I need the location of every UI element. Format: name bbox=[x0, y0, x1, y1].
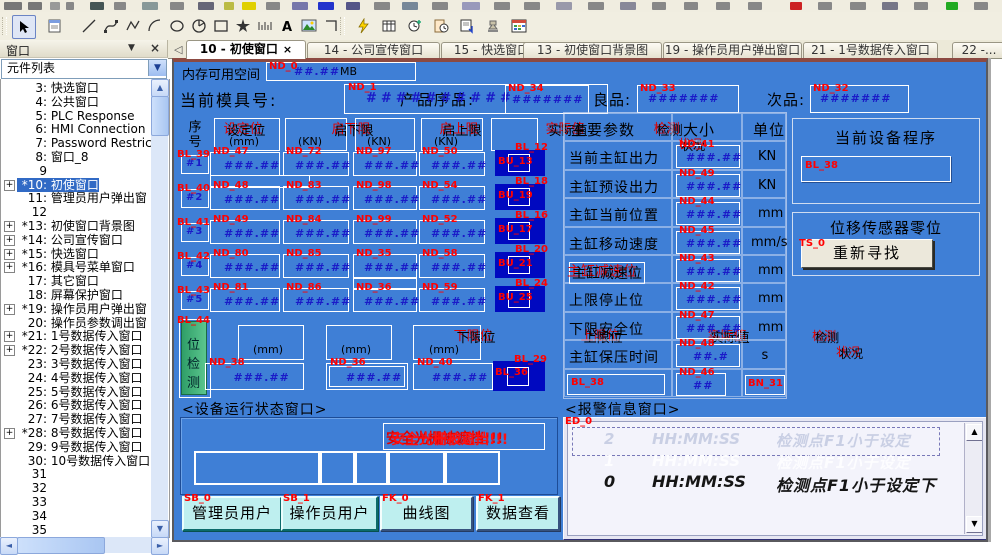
toolbar-fragment bbox=[292, 2, 308, 10]
object-id-label: ND_47 bbox=[679, 311, 715, 321]
tree-item-21[interactable]: +*21: 1号数据传入窗口 bbox=[1, 329, 169, 343]
params-unit: mm bbox=[758, 263, 783, 278]
params-name-cell[interactable]: 主缸当前位置 bbox=[564, 198, 672, 226]
toolbar-grip bbox=[340, 17, 345, 35]
toolbar-fragment bbox=[850, 2, 866, 10]
program-group: 当前设备程序BL_38 bbox=[792, 118, 980, 204]
status-segment-5[interactable] bbox=[443, 451, 500, 485]
object-id-label: ND_50 bbox=[422, 147, 458, 157]
toolbar-fragment bbox=[114, 2, 126, 10]
object-id-label: BL_42 bbox=[177, 252, 210, 262]
status-segment-4[interactable] bbox=[386, 451, 447, 485]
toolbar-fragment bbox=[432, 2, 448, 10]
component-list-combobox[interactable]: 元件列表 ▼ bbox=[1, 59, 167, 79]
toolbar-fragment bbox=[4, 2, 22, 10]
toolbar-fragment bbox=[556, 2, 572, 10]
expander-plus-icon[interactable]: + bbox=[4, 345, 15, 356]
pie-tool-icon[interactable] bbox=[188, 15, 210, 37]
object-id-label: ND_58 bbox=[422, 249, 458, 259]
params-unit-cell[interactable]: mm bbox=[742, 312, 786, 340]
object-id-label: ND_44 bbox=[679, 197, 715, 207]
stamp-tool-icon[interactable] bbox=[482, 15, 504, 37]
drawing-toolbar: A bbox=[0, 12, 1002, 41]
object-id-label: BL_18 bbox=[515, 177, 548, 187]
line-tool-icon[interactable] bbox=[78, 15, 100, 37]
tree-item-5[interactable]: 5: PLC Response bbox=[1, 109, 169, 123]
sensor-group: 位移传感器零位重新寻找TS_0 bbox=[792, 212, 980, 276]
properties-tool-icon[interactable] bbox=[44, 15, 66, 37]
tree-item-label[interactable]: 33 bbox=[17, 495, 47, 509]
safety-alarm-box[interactable]: 安全光栅被遮挡!!!安全光栅被遮挡!!! bbox=[383, 423, 545, 450]
tree-item-label[interactable]: 11: 管理员用户弹出窗 bbox=[17, 191, 147, 205]
tab-5[interactable]: 19 - 操作员用户弹出窗口 bbox=[663, 42, 802, 58]
tab-close-icon[interactable]: × bbox=[283, 43, 292, 56]
tree-item-35[interactable]: 35 bbox=[1, 523, 169, 537]
value-placeholder: ###.## bbox=[346, 371, 402, 384]
tree-item-label[interactable]: *28: 8号数据传入窗口 bbox=[17, 426, 142, 440]
params-unit: mm bbox=[758, 320, 783, 335]
bad-count-label[interactable]: 次品: bbox=[767, 89, 805, 110]
tree-item-label[interactable]: 31 bbox=[17, 467, 47, 481]
tree-item-33[interactable]: 33 bbox=[1, 495, 169, 509]
params-value-cell[interactable]: ND_44###.## bbox=[672, 198, 742, 226]
status-window-title[interactable]: <设备运行状态窗口> bbox=[182, 399, 327, 419]
zero-check-char: 检 bbox=[187, 353, 200, 372]
object-id-label: ND_84 bbox=[286, 215, 322, 225]
toolbar-fragment bbox=[90, 2, 104, 10]
object-id-label: ND_59 bbox=[422, 283, 458, 293]
params-name-cell[interactable]: 主缸移动速度 bbox=[564, 227, 672, 255]
scheduler-tool-icon[interactable] bbox=[404, 15, 426, 37]
tree-item-label[interactable]: 9 bbox=[17, 164, 47, 178]
toolbar-fragment bbox=[974, 2, 988, 10]
value-placeholder: ###.## bbox=[431, 261, 487, 274]
tree-item-label[interactable]: 27: 7号数据传入窗口 bbox=[17, 412, 142, 426]
object-id-label: BL_20 bbox=[515, 245, 548, 255]
program-title[interactable]: 当前设备程序 bbox=[793, 127, 979, 148]
status-segment-1[interactable] bbox=[194, 451, 322, 485]
expander-plus-icon[interactable]: + bbox=[4, 331, 15, 342]
object-id-label: ND_99 bbox=[356, 215, 392, 225]
tree-item-6[interactable]: 6: HMI Connection bbox=[1, 122, 169, 136]
expander-plus-icon[interactable]: + bbox=[4, 235, 15, 246]
tree-item-label[interactable]: 20: 操作员参数调出窗 bbox=[17, 316, 147, 330]
params-name-cell[interactable]: 下限安全位 bbox=[564, 312, 672, 340]
tree-item-label[interactable]: 26: 6号数据传入窗口 bbox=[17, 398, 142, 412]
params-header-text: 单位 bbox=[753, 119, 785, 140]
params-unit-cell[interactable]: mm bbox=[742, 198, 786, 226]
tree-hscrollbar[interactable]: ◄► bbox=[0, 537, 168, 553]
object-id-label: ND_86 bbox=[286, 283, 322, 293]
tree-item-22[interactable]: +*22: 2号数据传入窗口 bbox=[1, 343, 169, 357]
params-header[interactable]: 单位 bbox=[742, 113, 786, 141]
bezier-tool-icon[interactable] bbox=[100, 15, 122, 37]
combo-value: 元件列表 bbox=[2, 61, 55, 75]
tree-item-label[interactable]: 32 bbox=[17, 481, 47, 495]
params-value-cell[interactable]: ND_41###.## bbox=[672, 141, 742, 169]
report-tool-icon[interactable] bbox=[456, 15, 478, 37]
tree-item-23[interactable]: 23: 3号数据传入窗口 bbox=[1, 357, 169, 371]
window-tab-bar: ◁ 10 - 初使窗口×14 - 公司宣传窗口15 - 快选窗口13 - 初使窗… bbox=[168, 40, 1002, 59]
scale-tool-icon[interactable] bbox=[254, 15, 276, 37]
params-unit: mm bbox=[758, 291, 783, 306]
toolbar-fragment bbox=[346, 2, 360, 10]
params-value-cell[interactable]: ND_47###.## bbox=[672, 312, 742, 340]
tree-item-13[interactable]: +*13: 初使窗口背景图 bbox=[1, 219, 169, 233]
tab-4[interactable]: 13 - 初使窗口背景图 bbox=[523, 42, 662, 58]
tree-item-18[interactable]: 18: 屏幕保护窗口 bbox=[1, 288, 169, 302]
params-unit-cell[interactable]: mm bbox=[742, 283, 786, 311]
tree-item-4[interactable]: 4: 公共窗口 bbox=[1, 95, 169, 109]
tree-item-label[interactable]: 25: 5号数据传入窗口 bbox=[17, 385, 142, 399]
object-id-label: ND_48 bbox=[679, 339, 715, 349]
params-unit: s bbox=[762, 348, 769, 363]
tree-item-20[interactable]: 20: 操作员参数调出窗 bbox=[1, 316, 169, 330]
params-name-cell[interactable]: 上限停止位 bbox=[564, 283, 672, 311]
params-name: 上限停止位 bbox=[569, 290, 644, 310]
alarm-window-panel: 2HH:MM:SS检测点F1小于设定1HH:MM:SS检测点F1小于设定0HH:… bbox=[563, 417, 987, 540]
value-placeholder: ###.## bbox=[364, 227, 420, 240]
params-name-cell[interactable]: 主缸减速位主缸减速位 bbox=[564, 255, 672, 283]
params-header-text: 主要参数 bbox=[571, 119, 635, 140]
zero-header-unit[interactable]: 状况状况 bbox=[839, 345, 863, 362]
object-id-label: ND_32 bbox=[813, 84, 849, 94]
tree-item-30[interactable]: 30: 10号数据传入窗口 bbox=[1, 454, 169, 468]
zero-check-char: 位 bbox=[187, 334, 200, 353]
alarm-row-message: 检测点F1小于设定 bbox=[776, 452, 911, 473]
database-tool-icon[interactable] bbox=[378, 15, 400, 37]
tree-item-24[interactable]: 24: 4号数据传入窗口 bbox=[1, 371, 169, 385]
expander-plus-icon[interactable]: + bbox=[4, 304, 15, 315]
params-unit: mm/s bbox=[751, 235, 787, 250]
tree-item-10[interactable]: +*10: 初使窗口 bbox=[1, 178, 169, 192]
params-value-cell[interactable]: ND_48##.# bbox=[672, 340, 742, 368]
alarm-row-message: 检测点F1小于设定下 bbox=[776, 472, 936, 494]
tree-item-label[interactable]: *16: 模具号菜单窗口 bbox=[17, 260, 135, 274]
toolbar-fragment bbox=[818, 2, 832, 10]
zero-check-button[interactable]: 位检测 bbox=[181, 321, 207, 395]
object-id-label: ND_72 bbox=[286, 147, 322, 157]
polyline-tool-icon[interactable] bbox=[122, 15, 144, 37]
params-unit-cell[interactable]: KN bbox=[742, 141, 786, 169]
params-table: 主要参数大小单位当前主缸出力ND_41###.##KN主缸预设出力ND_49##… bbox=[563, 112, 787, 399]
panel-dropdown-icon[interactable]: ▼ bbox=[128, 43, 135, 53]
memory-label[interactable]: 内存可用空间 bbox=[182, 64, 260, 83]
tree-item-label[interactable]: 7: Password Restrict bbox=[17, 136, 156, 150]
object-id-label: ND_49 bbox=[679, 169, 715, 179]
status-window-panel: 安全光栅被遮挡!!!安全光栅被遮挡!!! bbox=[180, 417, 558, 495]
params-name-cell[interactable]: BL_38 bbox=[564, 369, 672, 397]
tree-item-label[interactable]: 17: 其它窗口 bbox=[17, 274, 99, 288]
object-id-label: ND_38 bbox=[209, 358, 245, 368]
params-name: 主缸当前位置 bbox=[569, 205, 659, 225]
tree-item-32[interactable]: 32 bbox=[1, 481, 169, 495]
alarm-row-time: HH:MM:SS bbox=[652, 472, 746, 491]
object-id-label: ND_36 bbox=[356, 283, 392, 293]
params-value-cell[interactable]: ND_49###.## bbox=[672, 170, 742, 198]
params-name[interactable]: 主缸减速位主缸减速位 bbox=[569, 262, 645, 284]
tree-item-label[interactable]: *10: 初使窗口 bbox=[17, 178, 99, 192]
toolbar-fragment bbox=[66, 2, 74, 10]
params-unit-cell[interactable]: mm bbox=[742, 255, 786, 283]
params-name-cell[interactable]: 主缸保压时间 bbox=[564, 340, 672, 368]
tree-item-label[interactable]: 35 bbox=[17, 523, 47, 537]
tree-item-label[interactable]: 23: 3号数据传入窗口 bbox=[17, 357, 142, 371]
window-panel-header: 窗口 ▼ × bbox=[0, 40, 168, 58]
tab-1[interactable]: 10 - 初使窗口× bbox=[186, 40, 306, 59]
alarm-row-index: 0 bbox=[604, 472, 615, 491]
object-id-label: ND_46 bbox=[679, 368, 715, 378]
tab-7[interactable]: 22 -... bbox=[952, 42, 1002, 58]
object-id-label: BL_44 bbox=[177, 316, 210, 326]
sensor-title[interactable]: 位移传感器零位 bbox=[793, 217, 979, 238]
value-placeholder: ###.## bbox=[686, 322, 742, 335]
scroll-down-icon[interactable]: ▼ bbox=[151, 520, 169, 538]
tree-item-label[interactable]: 29: 9号数据传入窗口 bbox=[17, 440, 142, 454]
tree-item-label[interactable]: 3: 快选窗口 bbox=[17, 81, 99, 95]
tree-item-label[interactable]: 34 bbox=[17, 509, 47, 523]
object-id-label: ND_52 bbox=[422, 215, 458, 225]
calendar-grid-tool-icon[interactable] bbox=[508, 15, 530, 37]
corner-tool-icon[interactable] bbox=[320, 15, 342, 37]
params-value-cell[interactable]: ND_46## bbox=[672, 369, 742, 397]
tree-item-19[interactable]: +*19: 操作员用户弹出窗 bbox=[1, 302, 169, 316]
toolbar-fragment bbox=[652, 2, 666, 10]
zero-header-unit: (mm) bbox=[341, 343, 371, 356]
select-tool-icon[interactable] bbox=[12, 15, 36, 39]
seq-column-header[interactable]: 序号 bbox=[186, 120, 204, 150]
tree-item-15[interactable]: +*15: 快选窗口 bbox=[1, 247, 169, 261]
tree-item-11[interactable]: 11: 管理员用户弹出窗 bbox=[1, 191, 169, 205]
object-id-label: ND_97 bbox=[356, 147, 392, 157]
hmi-design-canvas: 内存可用空间 当前模具号: 产品序品: 良品: 次品: <设备运行状态窗口> <… bbox=[172, 58, 988, 542]
object-id-label: ND_1 bbox=[348, 83, 377, 93]
toolbar-fragment bbox=[914, 2, 928, 10]
object-id-label: BL_36 bbox=[495, 368, 528, 378]
tab-6[interactable]: 21 - 1号数据传入窗口 bbox=[803, 42, 938, 58]
value-placeholder: ###.## bbox=[431, 193, 487, 206]
params-unit-cell[interactable]: s bbox=[742, 340, 786, 368]
value-placeholder: ###.## bbox=[364, 159, 420, 172]
tree-item-27[interactable]: 27: 7号数据传入窗口 bbox=[1, 412, 169, 426]
ellipse-tool-icon[interactable] bbox=[166, 15, 188, 37]
tree-item-label[interactable]: *14: 公司宣传窗口 bbox=[17, 233, 123, 247]
object-id-label: ND_49 bbox=[213, 215, 249, 225]
scroll-thumb[interactable] bbox=[151, 96, 169, 136]
object-id-label: BL_16 bbox=[515, 211, 548, 221]
expander-plus-icon[interactable]: + bbox=[4, 180, 15, 191]
tree-item-7[interactable]: 7: Password Restrict bbox=[1, 136, 169, 150]
object-id-label: BL_29 bbox=[514, 355, 547, 365]
tree-item-label[interactable]: 6: HMI Connection bbox=[17, 122, 145, 136]
params-value-cell[interactable]: ND_42###.## bbox=[672, 283, 742, 311]
alarm-row-time: HH:MM:SS bbox=[652, 452, 740, 470]
params-name-cell[interactable]: 当前主缸出力 bbox=[564, 141, 672, 169]
object-id-label: BU_13 bbox=[498, 157, 533, 167]
toolbar-fragment bbox=[170, 2, 184, 10]
alarm-list[interactable]: 2HH:MM:SS检测点F1小于设定1HH:MM:SS检测点F1小于设定0HH:… bbox=[567, 421, 983, 536]
star-tool-icon[interactable] bbox=[232, 15, 254, 37]
toolbar-fragment bbox=[620, 2, 636, 10]
safety-alarm-text: 安全光栅被遮挡!!! bbox=[391, 429, 508, 449]
value-placeholder: ## bbox=[693, 379, 713, 392]
tree-item-label[interactable]: 4: 公共窗口 bbox=[17, 95, 99, 109]
params-header[interactable]: 大小 bbox=[672, 113, 742, 141]
toolbar-fragment bbox=[50, 2, 60, 10]
toolbar-fragment bbox=[318, 2, 334, 10]
value-placeholder: ###.## bbox=[431, 159, 487, 172]
alarm-row-0[interactable]: 0HH:MM:SS检测点F1小于设定下 bbox=[568, 472, 960, 494]
object-id-label: BU_21 bbox=[498, 259, 533, 269]
scroll-up-icon[interactable]: ▲ bbox=[966, 424, 983, 441]
tree-item-label[interactable]: 30: 10号数据传入窗口 bbox=[17, 454, 150, 468]
params-unit-cell[interactable]: KN bbox=[742, 170, 786, 198]
zero-header-unit: (mm) bbox=[429, 343, 459, 356]
status-segment-3[interactable] bbox=[353, 451, 390, 485]
scroll-thumb[interactable] bbox=[17, 537, 105, 554]
tree-item-26[interactable]: 26: 6号数据传入窗口 bbox=[1, 398, 169, 412]
tree-item-label[interactable]: 5: PLC Response bbox=[17, 109, 135, 123]
object-id-label: BU_17 bbox=[498, 225, 533, 235]
params-unit: KN bbox=[758, 149, 776, 164]
alarm-row-index: 2 bbox=[604, 430, 614, 448]
arc-tool-icon[interactable] bbox=[144, 15, 166, 37]
tree-item-9[interactable]: 9 bbox=[1, 164, 169, 178]
tree-item-12[interactable]: 12 bbox=[1, 205, 169, 219]
value-placeholder: ###.## bbox=[364, 261, 420, 274]
object-id-label: BL_39 bbox=[177, 150, 210, 160]
tree-item-25[interactable]: 25: 5号数据传入窗口 bbox=[1, 385, 169, 399]
toolbar-grip bbox=[2, 17, 7, 35]
scroll-right-icon[interactable]: ► bbox=[151, 537, 169, 555]
tree-item-label[interactable]: *22: 2号数据传入窗口 bbox=[17, 343, 142, 357]
object-id-label: BU_25 bbox=[498, 293, 533, 303]
tab-label: 22 -... bbox=[962, 43, 997, 57]
program-field[interactable]: BL_38 bbox=[801, 156, 951, 182]
alarm-row-index: 1 bbox=[604, 452, 614, 470]
expander-plus-icon[interactable]: + bbox=[4, 249, 15, 260]
tree-item-label[interactable]: *21: 1号数据传入窗口 bbox=[17, 329, 142, 343]
object-id-label: ND_41 bbox=[679, 140, 715, 150]
object-id-label: BL_43 bbox=[177, 286, 210, 296]
tree-item-17[interactable]: 17: 其它窗口 bbox=[1, 274, 169, 288]
macro-tool-icon[interactable] bbox=[352, 15, 374, 37]
object-id-label: FK_0 bbox=[382, 494, 409, 504]
expander-plus-icon[interactable]: + bbox=[4, 428, 15, 439]
canvas-shadow bbox=[988, 58, 991, 542]
alarm-scrollbar[interactable]: ▲▼ bbox=[964, 423, 982, 534]
object-id-label: BL_40 bbox=[177, 184, 210, 194]
tree-item-label[interactable]: *15: 快选窗口 bbox=[17, 247, 99, 261]
scroll-up-icon[interactable]: ▲ bbox=[151, 79, 169, 97]
panel-close-icon[interactable]: × bbox=[150, 41, 160, 55]
tree-vscrollbar[interactable]: ▲▼ bbox=[151, 79, 168, 537]
tab-label: 15 - 快选窗口 bbox=[454, 43, 529, 57]
object-id-label: BL_38 bbox=[571, 378, 604, 388]
tree-item-label[interactable]: 18: 屏幕保护窗口 bbox=[17, 288, 123, 302]
object-id-label: ND_45 bbox=[679, 226, 715, 236]
tab-scroll-left-icon[interactable]: ◁ bbox=[174, 43, 182, 56]
tree-item-16[interactable]: +*16: 模具号菜单窗口 bbox=[1, 260, 169, 274]
tab-label: 14 - 公司宣传窗口 bbox=[324, 43, 423, 57]
rectangle-tool-icon[interactable] bbox=[210, 15, 232, 37]
value-placeholder: ###.## bbox=[686, 208, 742, 221]
alarm-row-time: HH:MM:SS bbox=[652, 430, 740, 448]
object-id-label: SB_0 bbox=[184, 494, 211, 504]
params-header[interactable]: 主要参数 bbox=[564, 113, 672, 141]
object-id-label: ND_42 bbox=[679, 282, 715, 292]
params-name: 主缸移动速度 bbox=[569, 234, 659, 254]
object-id-label: ND_34 bbox=[508, 84, 544, 94]
tree-item-label[interactable]: 24: 4号数据传入窗口 bbox=[17, 371, 142, 385]
tab-label: 10 - 初使窗口 bbox=[200, 42, 278, 56]
tree-item-8[interactable]: 8: 窗口_8 bbox=[1, 150, 169, 164]
mold-label[interactable]: 当前模具号: bbox=[180, 87, 277, 111]
tree-item-34[interactable]: 34 bbox=[1, 509, 169, 523]
tree-item-label[interactable]: *19: 操作员用户弹出窗 bbox=[17, 302, 147, 316]
params-name-cell[interactable]: 主缸预设出力 bbox=[564, 170, 672, 198]
clipboard-clock-tool-icon[interactable] bbox=[430, 15, 452, 37]
expander-plus-icon[interactable]: + bbox=[4, 262, 15, 273]
value-placeholder: ###.## bbox=[686, 265, 742, 278]
value-placeholder: ########## bbox=[366, 91, 515, 106]
toolbar-fragment bbox=[494, 2, 510, 10]
picture-tool-icon[interactable] bbox=[298, 15, 320, 37]
expander-plus-icon[interactable]: + bbox=[4, 221, 15, 232]
params-name: 主缸预设出力 bbox=[569, 177, 659, 197]
params-name: 下限安全位 bbox=[569, 319, 644, 339]
toolbar-fragment bbox=[242, 2, 256, 10]
toolbar-fragment bbox=[588, 2, 604, 10]
tree-item-28[interactable]: +*28: 8号数据传入窗口 bbox=[1, 426, 169, 440]
text-tool-icon[interactable]: A bbox=[276, 15, 298, 37]
value-placeholder: ###.## bbox=[295, 295, 351, 308]
value-placeholder: ###.## bbox=[686, 237, 742, 250]
tab-label: 13 - 初使窗口背景图 bbox=[537, 43, 648, 57]
tree-item-31[interactable]: 31 bbox=[1, 467, 169, 481]
tree-item-label[interactable]: 8: 窗口_8 bbox=[17, 150, 88, 164]
tree-item-29[interactable]: 29: 9号数据传入窗口 bbox=[1, 440, 169, 454]
scroll-down-icon[interactable]: ▼ bbox=[966, 516, 983, 533]
toolbar-fragment bbox=[684, 2, 698, 10]
object-id-label: BL_24 bbox=[515, 279, 548, 289]
alarm-row-2[interactable]: 2HH:MM:SS检测点F1小于设定 bbox=[568, 430, 960, 452]
scroll-left-icon[interactable]: ◄ bbox=[0, 537, 18, 555]
alarm-row-1[interactable]: 1HH:MM:SS检测点F1小于设定 bbox=[568, 452, 960, 474]
params-value-cell[interactable]: ND_45###.## bbox=[672, 227, 742, 255]
object-id-label: BL_38 bbox=[805, 161, 838, 171]
hmi-editor-window: { "toolbar": { "tools": ["select-tool","… bbox=[0, 0, 1002, 556]
toolbar-fragment bbox=[198, 2, 214, 10]
tab-label: 19 - 操作员用户弹出窗口 bbox=[665, 43, 800, 57]
params-unit-cell[interactable]: BN_31 bbox=[742, 369, 786, 397]
tab-2[interactable]: 14 - 公司宣传窗口 bbox=[307, 42, 440, 58]
tree-item-label[interactable]: *13: 初使窗口背景图 bbox=[17, 219, 135, 233]
tree-item-3[interactable]: 3: 快选窗口 bbox=[1, 81, 169, 95]
value-placeholder: ##.## bbox=[294, 65, 340, 78]
status-segment-2[interactable] bbox=[318, 451, 357, 485]
params-unit: KN bbox=[758, 178, 776, 193]
toolbar-fragment bbox=[882, 2, 898, 10]
value-placeholder: ###.## bbox=[224, 261, 280, 274]
object-id-label: TS_0 bbox=[799, 239, 825, 249]
params-unit-cell[interactable]: mm/s bbox=[742, 227, 786, 255]
params-value-cell[interactable]: ND_43###.## bbox=[672, 255, 742, 283]
chevron-down-icon[interactable]: ▼ bbox=[148, 60, 166, 76]
object-id-label: BL_41 bbox=[177, 218, 210, 228]
tree-item-14[interactable]: +*14: 公司宣传窗口 bbox=[1, 233, 169, 247]
tree-item-label[interactable]: 12 bbox=[17, 205, 47, 219]
